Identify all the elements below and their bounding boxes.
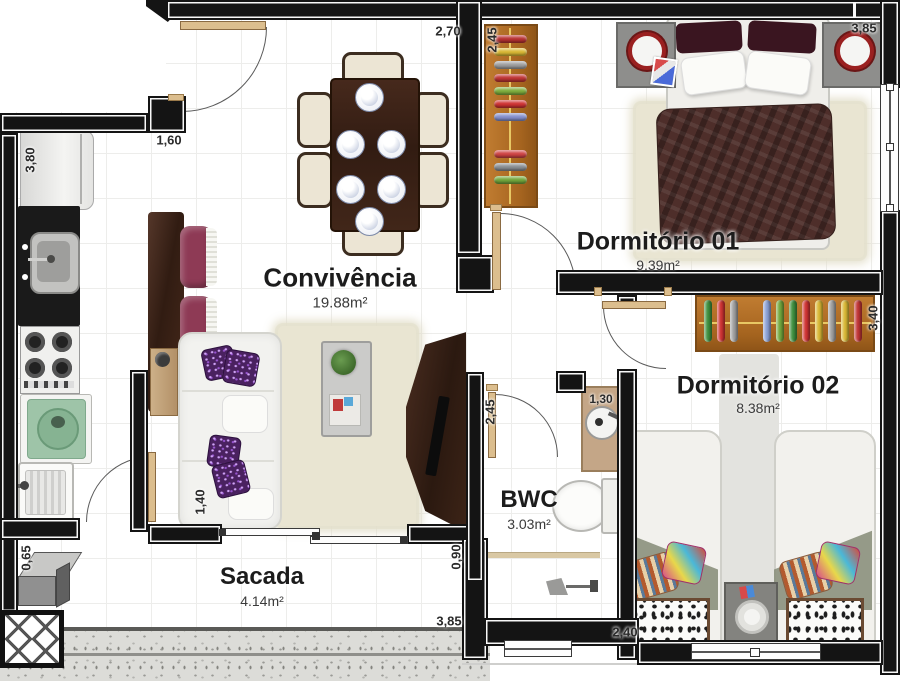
floor-plan: Convivência 19.88m² Dormitório 01 9.39m²…	[0, 0, 900, 681]
sliding-door-stop	[219, 529, 226, 536]
washing-machine-drum	[37, 408, 79, 450]
stove-burner	[52, 358, 72, 378]
window-glass-line	[505, 648, 571, 650]
entry-door-leaf	[180, 21, 266, 30]
wall-top	[166, 0, 900, 20]
dim-2-45-dorm1: 2,45	[485, 27, 500, 52]
wall-sacada-left	[148, 524, 222, 544]
clothes-item	[802, 300, 810, 342]
place-setting	[336, 175, 365, 204]
dorm1-photo-frame	[650, 56, 678, 87]
clothes-item	[854, 300, 862, 342]
dim-0-90: 0,90	[449, 544, 464, 569]
dorm2-lamp	[735, 600, 769, 634]
dim-2-40: 2,40	[612, 625, 637, 640]
dining-chair	[297, 92, 333, 148]
ac-unit-front	[18, 576, 56, 606]
room-area-dormitorio02: 8.38m²	[736, 400, 780, 416]
sliding-door-panel	[222, 528, 320, 536]
wall-seam	[853, 2, 856, 18]
stove-burner	[25, 332, 45, 352]
clothes-item	[789, 300, 797, 342]
outside-area	[0, 0, 166, 112]
sliding-door-stop	[400, 537, 407, 544]
room-area-dormitorio01: 9.39m²	[636, 257, 680, 273]
tray-item-blue	[344, 397, 353, 406]
slab-seam	[0, 653, 490, 656]
stove-burner	[52, 332, 72, 352]
dim-3-80: 3,80	[23, 147, 38, 172]
wall-bwc-west	[466, 372, 484, 582]
shower-arm	[566, 585, 592, 588]
dim-1-30: 1,30	[589, 392, 612, 406]
dorm2-deco	[739, 585, 755, 599]
clothes-item	[776, 300, 784, 342]
room-area-bwc: 3.03m²	[507, 516, 551, 532]
dorm1-wardrobe-clothes	[494, 32, 527, 186]
dorm1-pillow-dark	[675, 20, 742, 53]
wall-sofa-west	[130, 370, 148, 532]
clothes-item	[494, 87, 527, 95]
dorm1-lamp	[836, 32, 874, 70]
window-mullion	[886, 83, 894, 91]
wall-bwc-north	[556, 371, 586, 393]
sofa-seam	[182, 390, 274, 392]
dining-chair	[297, 152, 333, 208]
dim-1-40: 1,40	[193, 489, 208, 514]
room-label-convivencia: Convivência	[263, 263, 416, 294]
dorm1-door-leaf	[492, 212, 501, 290]
plant	[331, 350, 356, 375]
dorm2-footbox	[786, 598, 864, 646]
dim-0-65: 0,65	[19, 545, 34, 570]
wall-top-left	[0, 113, 148, 133]
clothes-item	[494, 113, 527, 121]
tray-item-red	[333, 399, 343, 411]
room-label-sacada: Sacada	[220, 563, 304, 591]
dorm2-door-jamb	[664, 287, 672, 296]
place-setting	[377, 130, 406, 159]
room-label-dormitorio01: Dormitório 01	[577, 228, 740, 257]
dorm2-footbox	[632, 598, 710, 646]
dim-1-60: 1,60	[156, 133, 181, 148]
faucet-knob	[22, 274, 28, 280]
stove-controls	[24, 381, 74, 388]
wall-dorm1-south	[556, 270, 883, 295]
window-mullion	[886, 143, 894, 151]
dim-3-85-top: 3,85	[851, 21, 876, 36]
wall-right-lower	[880, 210, 900, 675]
clothes-item	[494, 150, 527, 158]
clothes-item	[494, 100, 527, 108]
dorm2-color-pillow	[814, 540, 861, 585]
wall-service	[0, 518, 80, 540]
wall-entry-block	[148, 96, 186, 133]
clothes-item	[717, 300, 725, 342]
clothes-item	[763, 300, 771, 342]
dim-2-45-bwc: 2,45	[483, 399, 498, 424]
bwc-sink-drain	[595, 418, 603, 426]
room-area-sacada: 4.14m²	[240, 593, 284, 609]
room-label-dormitorio02: Dormitório 02	[677, 372, 840, 401]
clothes-item	[494, 74, 527, 82]
window-mullion	[886, 204, 894, 212]
place-setting	[355, 207, 384, 236]
sliding-door-handle	[312, 532, 320, 540]
clothes-item	[815, 300, 823, 342]
slab-edge-line	[0, 627, 490, 631]
dorm1-duvet	[656, 103, 837, 245]
dorm2-wardrobe-clothes	[701, 300, 864, 342]
dorm2-door-leaf	[602, 301, 666, 309]
place-setting	[377, 175, 406, 204]
bwc-window	[504, 640, 572, 657]
door-knob	[155, 352, 170, 367]
faucet-head	[47, 255, 55, 263]
wall-sacada-right	[407, 524, 470, 544]
shower-mount	[590, 580, 598, 592]
ac-unit-side	[56, 562, 70, 607]
dorm1-window	[880, 84, 899, 212]
clothes-item	[494, 163, 527, 171]
clothes-item	[494, 61, 527, 69]
bwc-door-jamb	[486, 384, 498, 391]
sliding-door-panel	[310, 536, 408, 544]
faucet-knob	[22, 244, 28, 250]
refrigerator-door-line	[80, 134, 82, 204]
dorm2-window	[691, 643, 821, 660]
shaft-hatch	[0, 610, 64, 668]
washing-machine-knob	[51, 416, 65, 428]
dim-2-70: 2,70	[435, 24, 460, 39]
dorm2-door-jamb	[594, 287, 602, 296]
sofa-cushion	[222, 395, 268, 433]
purple-pillow	[221, 348, 260, 387]
room-area-convivencia: 19.88m²	[312, 295, 367, 312]
clothes-item	[730, 300, 738, 342]
bar-stool-fringe	[206, 228, 217, 286]
wall-right-upper	[880, 0, 900, 88]
wall-conv-dorm1-block	[456, 255, 494, 293]
place-setting	[336, 130, 365, 159]
dim-3-85-bottom: 3,85	[436, 614, 461, 629]
clothes-item	[841, 300, 849, 342]
service-door-leaf	[148, 452, 156, 522]
laundry-tank-basin	[25, 470, 66, 515]
dorm1-door-jamb	[490, 204, 502, 211]
clothes-item	[704, 300, 712, 342]
clothes-item	[494, 176, 527, 184]
clothes-item	[828, 300, 836, 342]
wall-dorm2-west	[617, 369, 637, 660]
dim-3-40: 3,40	[866, 305, 881, 330]
dorm1-pillow-dark	[747, 20, 816, 54]
entry-door-jamb	[168, 94, 184, 101]
room-label-bwc: BWC	[500, 486, 557, 514]
wall-left	[0, 133, 18, 613]
laundry-faucet-knob	[20, 481, 29, 490]
stove-burner	[25, 358, 45, 378]
window-mullion	[750, 648, 760, 657]
place-setting	[355, 83, 384, 112]
dorm2-color-pillow	[660, 540, 707, 585]
shower-glass	[488, 552, 600, 558]
